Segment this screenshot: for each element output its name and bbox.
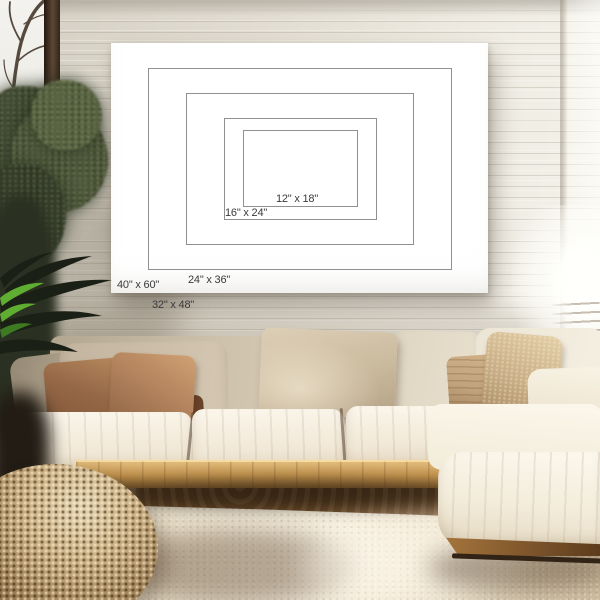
size-label-16x24: 16" x 24" [225,207,267,219]
chaise-front [438,452,600,548]
size-label-12x18: 12" x 18" [276,193,318,205]
bush-foliage-blob [32,80,102,150]
size-guide-poster: 40" x 60" 32" x 48" 24" x 36" 16" x 24" … [111,43,488,293]
living-room-product-photo: 40" x 60" 32" x 48" 24" x 36" 16" x 24" … [0,0,600,600]
size-label-24x36: 24" x 36" [188,274,230,286]
wall-top-shadow [0,0,600,16]
palm-leaves [0,250,128,356]
